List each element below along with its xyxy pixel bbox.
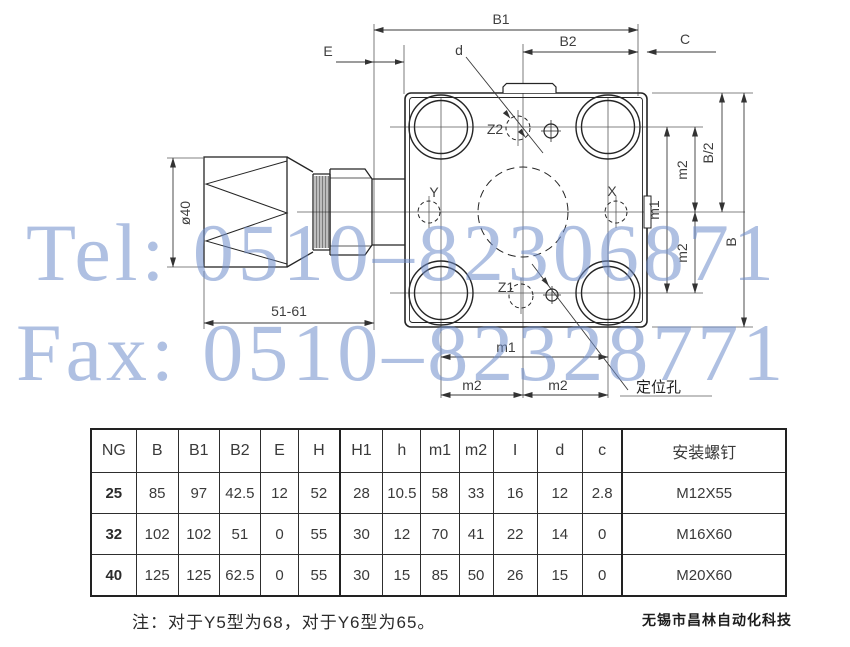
table-cell: 97 (178, 473, 219, 514)
table-cell: 40 (91, 555, 136, 597)
table-cell: M20X60 (622, 555, 786, 597)
label-dia40: ø40 (177, 201, 193, 225)
label-b-half: B/2 (700, 142, 716, 163)
top-view-block (405, 84, 651, 328)
extension-lines (167, 24, 753, 396)
table-cell: 0 (582, 514, 622, 555)
table-cell: 15 (383, 555, 421, 597)
table-cell: 41 (459, 514, 493, 555)
label-c: C (680, 31, 690, 47)
table-row: 32102102510553012704122140M16X60 (91, 514, 786, 555)
top-tab (503, 84, 556, 94)
column-header: m2 (459, 429, 493, 473)
table-cell: 42.5 (219, 473, 260, 514)
label-e: E (323, 43, 332, 59)
table-cell: 58 (421, 473, 459, 514)
table-cell: 25 (91, 473, 136, 514)
label-d: d (455, 42, 463, 58)
table-cell: 30 (340, 514, 383, 555)
label-m2-right-lower: m2 (674, 243, 690, 263)
table-body: 25859742.512522810.5583316122.8M12X55321… (91, 473, 786, 597)
label-y: Y (429, 184, 439, 200)
table-header-row: NGBB1B2EHH1hm1m2Idc安装螺钉 (91, 429, 786, 473)
label-z2: Z2 (487, 121, 504, 137)
table-cell: 51 (219, 514, 260, 555)
table-cell: 55 (299, 514, 340, 555)
column-header: 安装螺钉 (622, 429, 786, 473)
table-cell: 70 (421, 514, 459, 555)
column-header: NG (91, 429, 136, 473)
label-locating-hole: 定位孔 (636, 379, 681, 396)
column-header: m1 (421, 429, 459, 473)
column-header: h (383, 429, 421, 473)
label-m1-bottom: m1 (496, 339, 516, 355)
table-row: 4012512562.50553015855026150M20X60 (91, 555, 786, 597)
table-cell: 32 (91, 514, 136, 555)
column-header: d (537, 429, 582, 473)
valve-drawing-page: B1 B2 C E d ø40 51-61 m1 m2 m2 m1 m2 m2 … (0, 0, 850, 647)
column-header: c (582, 429, 622, 473)
label-b: B (723, 237, 739, 246)
table-cell: 85 (136, 473, 178, 514)
column-header: E (260, 429, 298, 473)
table-cell: 33 (459, 473, 493, 514)
table-cell: 0 (582, 555, 622, 597)
table-cell: 12 (537, 473, 582, 514)
table-cell: M16X60 (622, 514, 786, 555)
table-cell: 12 (260, 473, 298, 514)
table-cell: 125 (136, 555, 178, 597)
label-m2-right-upper: m2 (674, 160, 690, 180)
table-cell: M12X55 (622, 473, 786, 514)
table-cell: 62.5 (219, 555, 260, 597)
table-cell: 102 (136, 514, 178, 555)
locating-hole (543, 286, 561, 304)
table-cell: 50 (459, 555, 493, 597)
table-cell: 0 (260, 555, 298, 597)
table-cell: 2.8 (582, 473, 622, 514)
column-header: I (493, 429, 537, 473)
table-cell: 26 (493, 555, 537, 597)
label-m2-bottom-right: m2 (548, 377, 568, 393)
table-cell: 55 (299, 555, 340, 597)
company-name: 无锡市昌林自动化科技 (580, 610, 792, 630)
table-row: 25859742.512522810.5583316122.8M12X55 (91, 473, 786, 514)
table-cell: 16 (493, 473, 537, 514)
table-cell: 85 (421, 555, 459, 597)
table-cell: 28 (340, 473, 383, 514)
table-cell: 102 (178, 514, 219, 555)
dimension-table: NGBB1B2EHH1hm1m2Idc安装螺钉 25859742.5125228… (90, 428, 787, 597)
label-m2-bottom-left: m2 (462, 377, 482, 393)
footnote: 注：对于Y5型为68，对于Y6型为65。 (132, 608, 435, 633)
label-m1-right: m1 (646, 200, 662, 220)
label-x: X (607, 183, 617, 199)
label-z1: Z1 (498, 279, 515, 295)
column-header: B2 (219, 429, 260, 473)
table-cell: 12 (383, 514, 421, 555)
table-cell: 0 (260, 514, 298, 555)
table-cell: 30 (340, 555, 383, 597)
d-hole (541, 120, 561, 142)
table-cell: 10.5 (383, 473, 421, 514)
column-header: H1 (340, 429, 383, 473)
table-cell: 125 (178, 555, 219, 597)
table-cell: 15 (537, 555, 582, 597)
label-b2: B2 (559, 33, 576, 49)
column-header: B (136, 429, 178, 473)
label-51-61: 51-61 (271, 303, 307, 319)
table-cell: 14 (537, 514, 582, 555)
column-header: H (299, 429, 340, 473)
d-leader (466, 57, 543, 153)
label-b1: B1 (492, 11, 509, 27)
table-cell: 22 (493, 514, 537, 555)
valve-technical-drawing: B1 B2 C E d ø40 51-61 m1 m2 m2 m1 m2 m2 … (0, 0, 850, 430)
column-header: B1 (178, 429, 219, 473)
table-cell: 52 (299, 473, 340, 514)
